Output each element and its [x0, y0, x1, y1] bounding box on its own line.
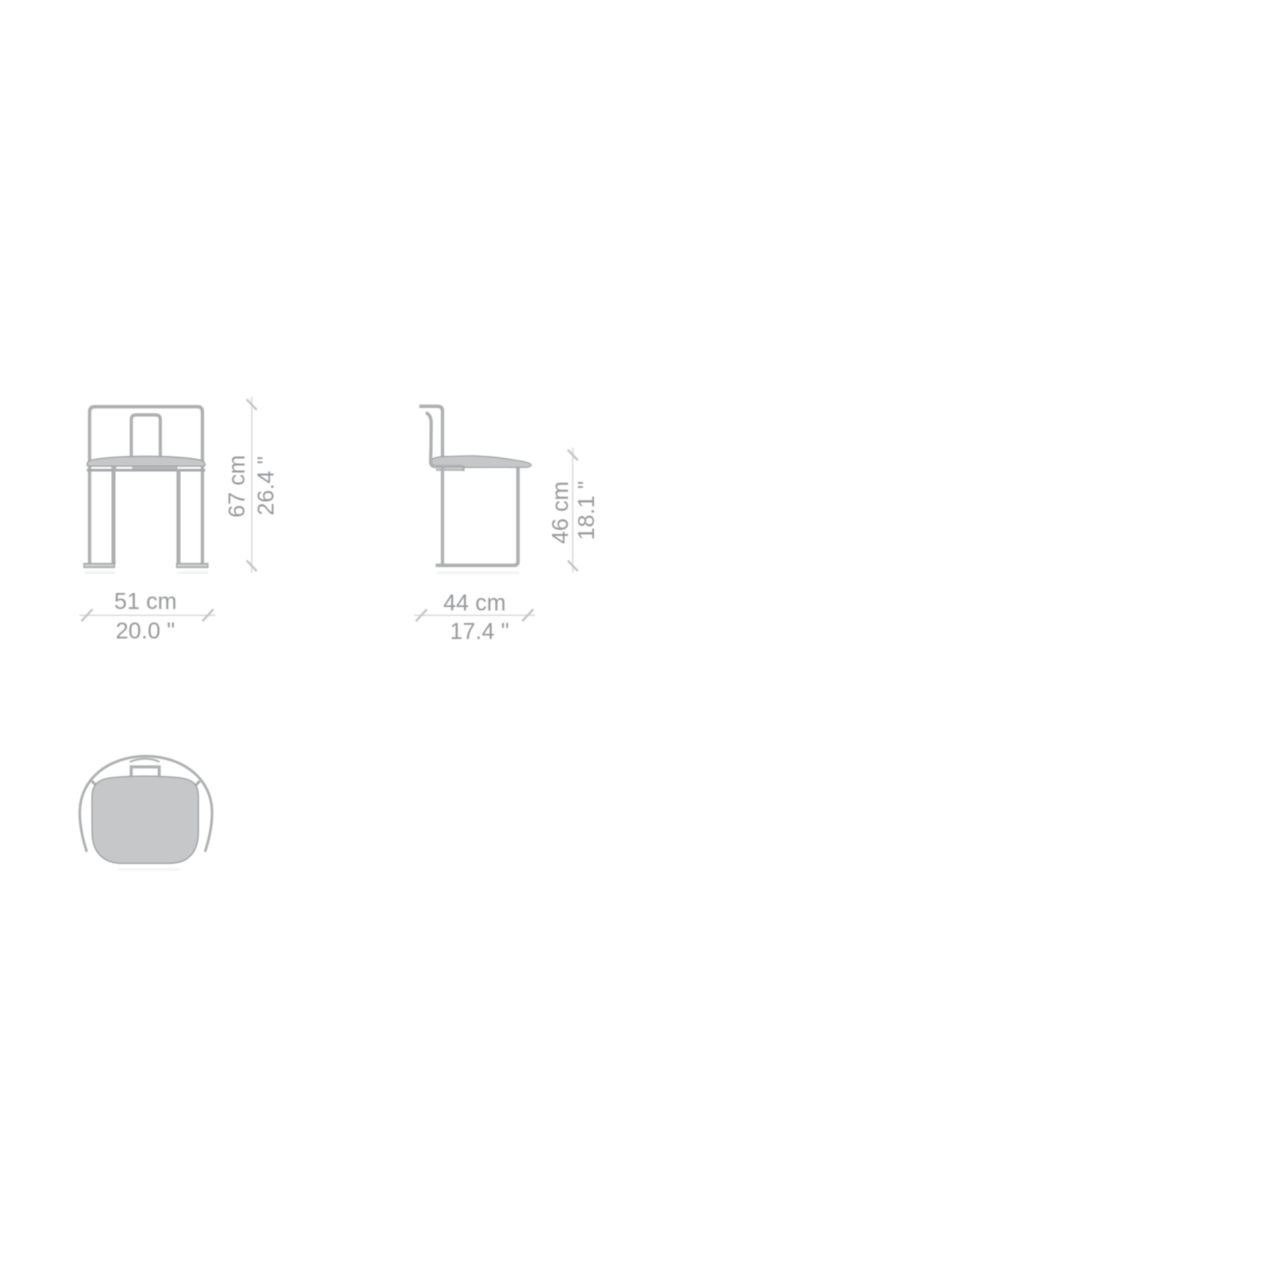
- svg-text:51 cm: 51 cm: [114, 588, 177, 614]
- svg-text:67 cm: 67 cm: [224, 455, 250, 518]
- svg-text:18.1 ": 18.1 ": [573, 481, 599, 540]
- svg-text:17.4 ": 17.4 ": [450, 618, 509, 644]
- svg-text:46 cm: 46 cm: [547, 481, 573, 544]
- svg-text:44 cm: 44 cm: [443, 589, 506, 615]
- svg-text:26.4 ": 26.4 ": [253, 456, 279, 515]
- svg-text:20.0 ": 20.0 ": [116, 618, 175, 644]
